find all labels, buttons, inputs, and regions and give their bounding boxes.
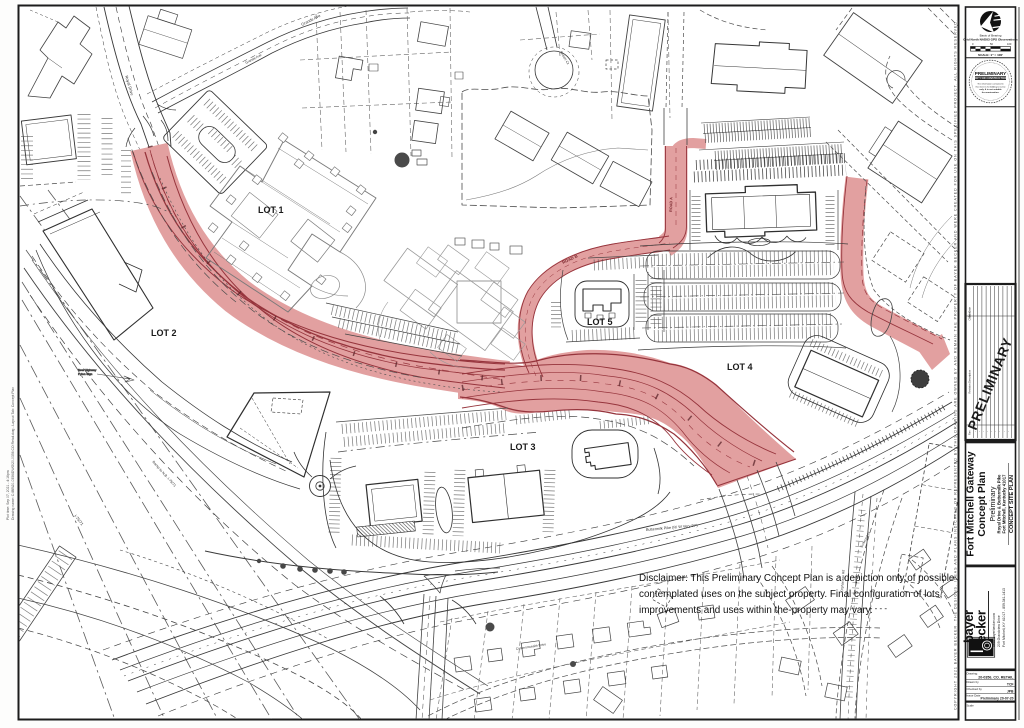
svg-text:20-0356. CO. RETAIL: 20-0356. CO. RETAIL bbox=[978, 675, 1014, 679]
svg-text:Drawing name: C:\BB\20-0356\DW: Drawing name: C:\BB\20-0356\DWG\20-0356 … bbox=[11, 387, 15, 520]
svg-text:-: - bbox=[999, 429, 1000, 433]
svg-text:Scale: Scale bbox=[967, 704, 975, 708]
svg-text:LOT 5: LOT 5 bbox=[587, 317, 613, 327]
svg-text:Fort Mitchell, KY 41017 - 859.: Fort Mitchell, KY 41017 - 859.341.1413 bbox=[1002, 588, 1006, 647]
svg-text:Issue Date: Issue Date bbox=[967, 694, 981, 698]
svg-text:-: - bbox=[983, 429, 984, 433]
svg-text:-: - bbox=[995, 429, 996, 433]
svg-text:Disclaimer: This Preliminary C: Disclaimer: This Preliminary Concept Pla… bbox=[639, 573, 955, 584]
svg-text:LOT 3: LOT 3 bbox=[510, 442, 536, 452]
svg-text:only. It is not suitable: only. It is not suitable bbox=[979, 88, 1002, 91]
svg-text:this sheet is for bidding & re: this sheet is for bidding & review bbox=[976, 85, 1006, 88]
svg-text:209 Grandview Drive: 209 Grandview Drive bbox=[997, 615, 1001, 647]
svg-text:improvements and uses within t: improvements and uses within the-propert… bbox=[639, 605, 873, 616]
svg-text:Drawn by: Drawn by bbox=[967, 680, 980, 684]
svg-text:- - - - - -: - - - - - - bbox=[860, 604, 887, 613]
svg-text:-: - bbox=[991, 429, 992, 433]
svg-text:TCF: TCF bbox=[1007, 683, 1014, 687]
svg-text:Grid North NAD83 GPS Observati: Grid North NAD83 GPS Observations bbox=[963, 37, 1018, 41]
svg-text:contemplated uses on the subje: contemplated uses on the subject propert… bbox=[639, 589, 942, 600]
svg-text:Revision Description: Revision Description bbox=[968, 369, 972, 393]
svg-text:Rev: Rev bbox=[968, 430, 972, 435]
svg-text:-: - bbox=[1004, 429, 1005, 433]
svg-text:-: - bbox=[987, 429, 988, 433]
svg-text:Preliminary 20-07-20: Preliminary 20-07-20 bbox=[981, 696, 1014, 700]
svg-text:LOT 2: LOT 2 bbox=[151, 328, 177, 338]
svg-text:100: 100 bbox=[1007, 42, 1012, 46]
svg-text:Fort Mitchell, Kentucky 41017: Fort Mitchell, Kentucky 41017 bbox=[1001, 474, 1006, 534]
svg-text:Pylon Sign: Pylon Sign bbox=[78, 372, 93, 376]
svg-text:The information contained in: The information contained in bbox=[977, 83, 1004, 86]
svg-text:Chkd: Chkd bbox=[968, 314, 972, 321]
svg-text:Checked by: Checked by bbox=[967, 687, 983, 691]
svg-text:JPB: JPB bbox=[1007, 689, 1014, 693]
svg-text:LOT 1: LOT 1 bbox=[258, 205, 284, 215]
svg-text:PRELIMINARY: PRELIMINARY bbox=[975, 71, 1006, 76]
svg-text:LOT 4: LOT 4 bbox=[727, 362, 753, 372]
svg-text:Plot time: Sep 07, 2021 - 4:16: Plot time: Sep 07, 2021 - 4:16pm bbox=[6, 470, 10, 520]
svg-text:NOT FOR CONSTRUCTION: NOT FOR CONSTRUCTION bbox=[974, 77, 1006, 80]
svg-text:Drawing:: Drawing: bbox=[967, 672, 979, 676]
svg-text:ROAD A: ROAD A bbox=[669, 197, 674, 212]
svg-text:SCALE: 1" = 100': SCALE: 1" = 100' bbox=[978, 53, 1003, 57]
svg-text:for construction.: for construction. bbox=[982, 91, 1000, 94]
svg-text:-: - bbox=[1008, 429, 1009, 433]
svg-text:CONCEPT SITE PLAN: CONCEPT SITE PLAN bbox=[1009, 475, 1015, 533]
svg-text:Concept Plan: Concept Plan bbox=[977, 471, 988, 536]
svg-text:Fort Mitchell Gateway: Fort Mitchell Gateway bbox=[966, 451, 977, 557]
svg-text:COPYRIGHT 2021 BAYER BECKER.: COPYRIGHT 2021 BAYER BECKER. THE DESIGNS… bbox=[954, 20, 958, 710]
